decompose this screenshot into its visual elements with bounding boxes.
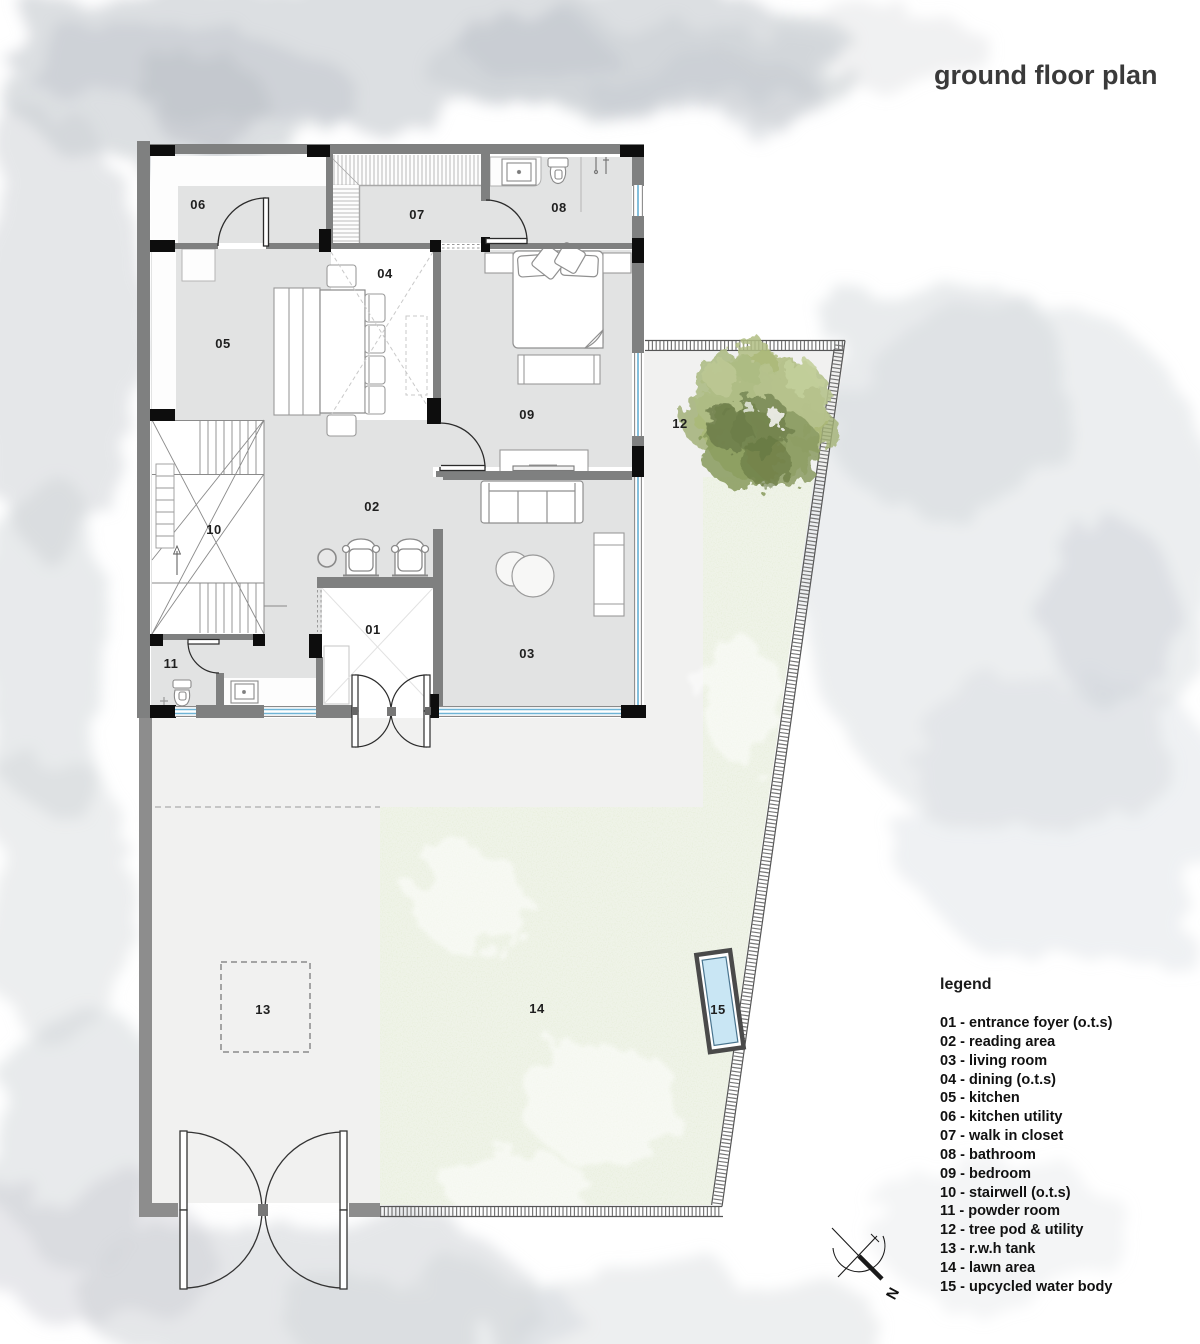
svg-text:legend: legend xyxy=(940,976,992,993)
svg-text:12 - tree pod & utility: 12 - tree pod & utility xyxy=(940,1222,1083,1238)
svg-text:14 - lawn area: 14 - lawn area xyxy=(940,1260,1036,1276)
svg-text:06: 06 xyxy=(190,197,205,212)
svg-text:07 - walk in closet: 07 - walk in closet xyxy=(940,1128,1063,1144)
svg-text:11 - powder room: 11 - powder room xyxy=(940,1203,1060,1219)
svg-text:08 - bathroom: 08 - bathroom xyxy=(940,1147,1036,1163)
svg-text:08: 08 xyxy=(551,200,566,215)
svg-text:09 - bedroom: 09 - bedroom xyxy=(940,1166,1031,1182)
svg-text:04: 04 xyxy=(377,266,393,281)
svg-text:01 - entrance foyer (o.t.s): 01 - entrance foyer (o.t.s) xyxy=(940,1015,1113,1031)
svg-text:03: 03 xyxy=(519,646,534,661)
svg-text:ground floor plan: ground floor plan xyxy=(934,60,1157,90)
svg-text:01: 01 xyxy=(365,622,380,637)
svg-text:07: 07 xyxy=(409,207,424,222)
svg-text:14: 14 xyxy=(529,1001,545,1016)
svg-text:13 - r.w.h tank: 13 - r.w.h tank xyxy=(940,1241,1036,1257)
svg-text:06 - kitchen utility: 06 - kitchen utility xyxy=(940,1109,1062,1125)
svg-text:13: 13 xyxy=(255,1002,270,1017)
svg-text:09: 09 xyxy=(519,407,534,422)
svg-text:10: 10 xyxy=(206,522,221,537)
svg-text:02: 02 xyxy=(364,499,379,514)
svg-text:05: 05 xyxy=(215,336,230,351)
svg-text:12: 12 xyxy=(672,416,687,431)
svg-text:03 - living room: 03 - living room xyxy=(940,1053,1047,1069)
svg-text:15: 15 xyxy=(710,1002,725,1017)
svg-text:10 - stairwell (o.t.s): 10 - stairwell (o.t.s) xyxy=(940,1185,1071,1201)
svg-text:04 - dining (o.t.s): 04 - dining (o.t.s) xyxy=(940,1072,1056,1088)
svg-text:15 - upcycled water body: 15 - upcycled water body xyxy=(940,1279,1112,1295)
svg-text:02 - reading area: 02 - reading area xyxy=(940,1034,1056,1050)
svg-text:11: 11 xyxy=(164,656,179,671)
svg-text:05 - kitchen: 05 - kitchen xyxy=(940,1090,1020,1106)
